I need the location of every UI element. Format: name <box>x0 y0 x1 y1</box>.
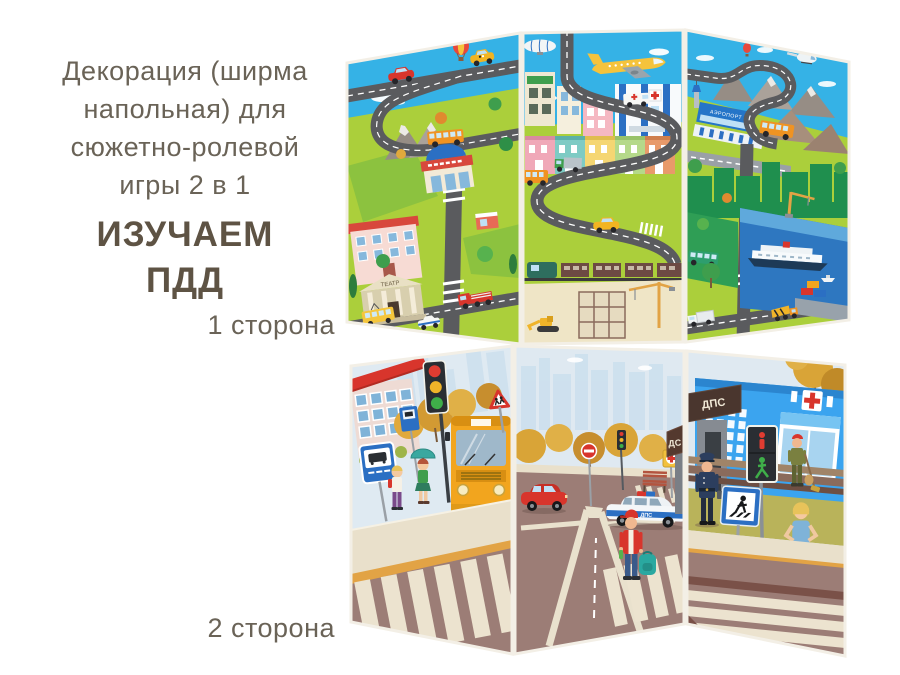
dps-left-text: ДС <box>668 437 682 448</box>
kiosk <box>475 212 499 230</box>
panel-side2-middle: ДПС <box>512 346 710 654</box>
product-caption: Декорация (ширма напольная) для сюжетно-… <box>25 52 345 304</box>
police-car-marking: ДПС <box>640 512 652 518</box>
panel-side1-right: АЭРОПОРТ <box>686 30 849 344</box>
caption-highlight-line: ПДД <box>25 258 345 304</box>
caption-highlight: ИЗУЧАЕМ ПДД <box>25 212 345 304</box>
panel-side1-left: ТЕАТР <box>346 33 520 344</box>
red-standing-man <box>759 432 765 449</box>
panel-side2-left <box>346 343 518 659</box>
screen-side2-traffic-scene: ДПС <box>345 338 850 660</box>
panel-side2-right: ДПС <box>687 346 850 656</box>
product-image: Декорация (ширма напольная) для сюжетно-… <box>0 0 900 675</box>
school-building <box>346 216 425 286</box>
caption-line: напольная) для <box>25 90 345 128</box>
panel-side1-middle <box>518 30 683 344</box>
side1-label: 1 сторона <box>25 310 335 341</box>
screen-side1-city-map: ТЕАТР <box>343 26 853 346</box>
caption-line: игры 2 в 1 <box>25 166 345 204</box>
train <box>523 262 683 281</box>
red-cross <box>801 390 823 412</box>
caption-line: сюжетно-ролевой <box>25 128 345 166</box>
caption-highlight-line: ИЗУЧАЕМ <box>25 212 345 258</box>
backpack <box>639 552 656 575</box>
caption-line: Декорация (ширма <box>25 52 345 90</box>
building-frame <box>579 292 625 338</box>
side2-label: 2 сторона <box>25 613 335 644</box>
